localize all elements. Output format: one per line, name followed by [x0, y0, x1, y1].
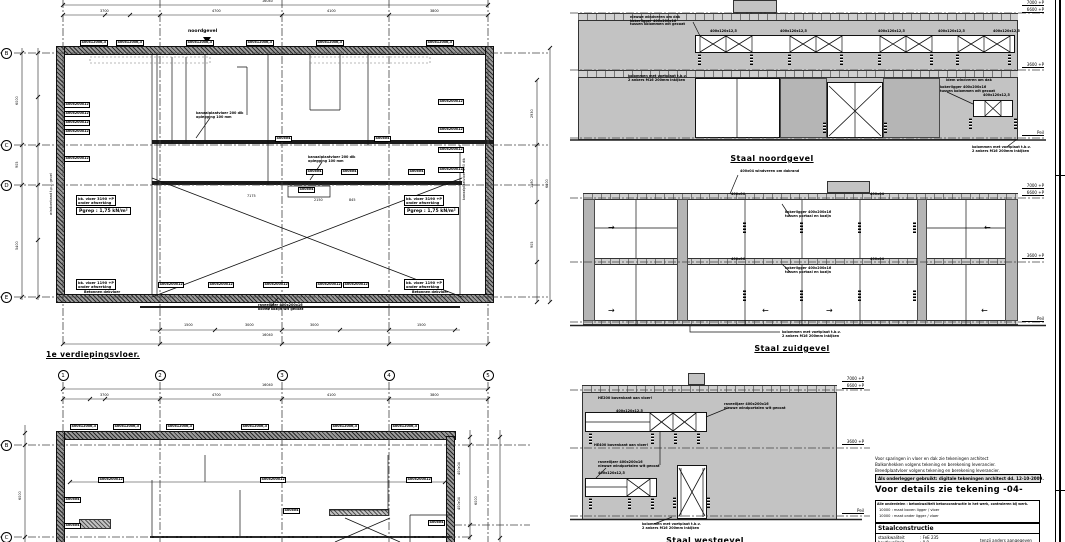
anchor-mark — [651, 498, 654, 509]
plan1-corridor-wall-2 — [152, 181, 462, 185]
beam-label: 400x200x12 — [64, 120, 90, 126]
zuidgevel-plinth — [583, 320, 1018, 325]
dimension-value: 4700 — [212, 10, 221, 14]
beam-label: 400x04 — [64, 497, 81, 503]
floor-level-note-low: bk. vloer 1190 +Ponder afwerking — [76, 279, 116, 290]
grid-bubble-row: B — [1, 440, 12, 451]
legend-item: 10000 : maat onder ligger / vloer — [879, 514, 939, 518]
level-label: 7000 +P — [1022, 1, 1044, 6]
beam-label: 400x200x12 — [64, 129, 90, 135]
floor-level-note: bk. vloer 3190 +Ponder afwerking — [76, 195, 116, 206]
plan2-partition — [80, 520, 110, 528]
plan2-west-wall — [57, 432, 64, 542]
beam-label: 400x200x12 — [438, 127, 464, 133]
grid-bubble-row: B — [1, 48, 12, 59]
beam-label: 400x200x12 — [158, 282, 184, 288]
dimension-value: 16040 — [262, 0, 273, 4]
anchor-mark — [589, 433, 592, 444]
level-label: Peil — [1022, 131, 1044, 136]
plan1-south-wall — [57, 295, 493, 302]
westgevel-title: Staal westgevel — [640, 536, 770, 542]
grid-bubble-col: 2 — [155, 370, 166, 381]
level-label: Peil — [842, 509, 864, 514]
noordgevel-roof-edge — [578, 13, 1018, 21]
leader-annotation: kolommen met voetplaat t.b.v. 2 ankers M… — [782, 331, 841, 338]
dimension-value: 5400 — [16, 241, 20, 250]
anchor-mark — [823, 122, 826, 133]
plank-outlines — [90, 57, 430, 63]
grid-bubble-row: E — [1, 292, 12, 303]
grid-bubble-row: D — [1, 180, 12, 191]
dimension-value: 1500 — [184, 324, 193, 328]
beam-label: 400x04 — [341, 169, 358, 175]
note-boxed: Als onderlegger gebruikt: digitale teken… — [875, 474, 1041, 483]
anchor-mark — [589, 498, 592, 509]
dimension-value: kanaalplaatvloer 200 dik — [463, 158, 467, 200]
anchor-mark — [930, 54, 933, 65]
dimension-value: 4100 — [327, 10, 336, 14]
grid-bubble-col: 4 — [384, 370, 395, 381]
noordgevel-brace-band-window — [695, 35, 1015, 53]
dimension-value: 16040 — [262, 384, 273, 388]
plan1-corridor-wall — [152, 140, 493, 144]
dimension-value: 3800 — [430, 394, 439, 398]
zuidgevel-floor-edge — [583, 258, 1018, 265]
anchor-mark — [884, 122, 887, 133]
beam-label: 400x200x12 — [64, 102, 90, 108]
dimension-value: 400x04 — [458, 497, 462, 510]
plan1-west-wall — [57, 47, 64, 302]
noordgevel-title: Staal noordgevel — [712, 154, 832, 163]
floor-level-line2: onder afwerking — [406, 201, 439, 205]
leader-annotation: kanaalplaatvloer 200 dik oplegging 100 m… — [196, 112, 243, 119]
level-label: 7000 +P — [842, 377, 864, 382]
anchor-mark — [858, 290, 861, 301]
note-line: Breedplaatvloer volgens tekening en bere… — [875, 468, 1000, 473]
beam-label: 400x200x12 — [64, 111, 90, 117]
beam-label: 400x120x6,3 — [426, 40, 454, 46]
floor-level-line2: onder afwerking — [406, 285, 439, 289]
legend-title: Alle onderdelen : betonkwaliteit betonco… — [877, 502, 1028, 506]
noordgevel-pier — [780, 78, 827, 138]
floor-level-line2: onder afwerking — [78, 201, 111, 205]
sheet-border-outer — [1059, 0, 1061, 542]
anchor-mark — [743, 222, 746, 233]
beam-label: 400x120x6,3 — [246, 40, 274, 46]
westgevel-brace-band-upper — [585, 412, 707, 432]
level-label: 7000 +P — [1022, 184, 1044, 189]
plan2-partition-2 — [330, 510, 388, 515]
beam-label: 400x120x6,3 — [391, 424, 419, 430]
dimension-value: 3000 — [310, 324, 319, 328]
anchor-mark — [1008, 54, 1011, 65]
plan1-edge-beam — [140, 306, 460, 308]
beam-label: 400x04 — [408, 169, 425, 175]
beam-label: 400x120x6,3 — [316, 40, 344, 46]
note-line: Voor sparingen in vloer en dak zie teken… — [875, 456, 988, 461]
leader-annotation: kolommen met voetplaat t.b.v. 2 ankers M… — [972, 146, 1031, 153]
noordgevel-roof-box — [733, 0, 777, 13]
anchor-mark — [969, 118, 972, 129]
dimension-value: 1580 — [531, 179, 535, 188]
zuidgevel-pier — [677, 199, 688, 321]
dimension-ticks — [20, 3, 552, 540]
detail-reference-note: Voor details zie tekening -04- — [875, 484, 1023, 494]
zuidgevel-roof-box — [827, 181, 870, 193]
anchor-mark — [878, 54, 881, 65]
beam-label: 400x200x12 — [406, 477, 432, 483]
beam-label: 400x120x6,3 — [241, 424, 269, 430]
beam-label: 400x04 — [64, 523, 81, 529]
beam-label: 400x200x12 — [438, 167, 464, 173]
beam-label: 400x04 — [428, 520, 445, 526]
dimension-lines — [22, 5, 550, 542]
anchor-mark — [800, 222, 803, 233]
plan2-edge-beam — [150, 536, 452, 538]
noordgevel-opening — [695, 78, 780, 138]
zuidgevel-roof-edge — [583, 193, 1018, 200]
anchor-mark — [956, 54, 959, 65]
dimension-value: 3000 — [245, 324, 254, 328]
level-label: 6600 +P — [842, 384, 864, 389]
anchor-mark — [913, 290, 916, 301]
beam-label: 400x200x12 — [316, 282, 342, 288]
grid-bubble-col: 5 — [483, 370, 494, 381]
dimension-value: 905 — [16, 162, 20, 168]
beam-label: 400x04 — [306, 169, 323, 175]
noordgevel-floor-edge — [578, 70, 1018, 78]
westgevel-roof-box — [688, 373, 705, 385]
anchor-mark — [673, 497, 676, 508]
dimension-value: 845 — [349, 199, 355, 203]
unless-noted-otherwise: tenzij anders aangegeven — [980, 538, 1032, 542]
dimension-value: 905 — [531, 242, 535, 248]
beam-label: 400x200x12 — [438, 99, 464, 105]
zuidgevel-pier — [583, 199, 595, 321]
north-facade-marker: noordgevel — [188, 29, 217, 34]
drawing-sheet: B C D E 1 2 3 4 5 B C 1e verdiepingsvloe… — [0, 0, 1065, 542]
sheet-border-tick — [1055, 175, 1065, 176]
anchor-mark — [651, 433, 654, 444]
dimension-value: 1500 — [417, 324, 426, 328]
dimension-value: 16040 — [262, 334, 273, 338]
beam-label: 400x04 — [298, 187, 315, 193]
dimension-value: windverband t.p.v. gevel — [50, 173, 54, 215]
anchor-mark — [674, 433, 677, 444]
anchor-mark — [1014, 118, 1017, 129]
dimension-value: 7175 — [247, 195, 256, 199]
noordgevel-door — [827, 82, 883, 138]
zuidgevel-title: Staal zuidgevel — [732, 344, 852, 353]
dimension-value: 6000 — [16, 96, 20, 105]
level-label: 3600 +P — [842, 440, 864, 445]
leader-annotation: kanaalplaatvloer 200 dik oplegging 100 m… — [308, 156, 355, 163]
level-label: 6600 +P — [1022, 191, 1044, 196]
dimension-value: 6000 — [475, 496, 479, 505]
dimension-value: 3800 — [430, 10, 439, 14]
anchor-mark — [743, 290, 746, 301]
grid-bubble-col: 1 — [58, 370, 69, 381]
legend-item: 10000 : maat boven ligger / vloer — [879, 508, 939, 512]
grid-bubble-col: 3 — [277, 370, 288, 381]
note-line: Balkonhekken volgens tekening en bereken… — [875, 462, 996, 467]
level-label: 6600 +P — [1022, 8, 1044, 13]
beam-label: 400x200x12 — [263, 282, 289, 288]
sheet-border-inner — [1055, 0, 1056, 542]
noordgevel-small-window — [973, 100, 1013, 117]
leader-annotation: kolommen met voetplaat t.b.v. 2 ankers M… — [642, 523, 701, 530]
floor-level-line2: onder afwerking — [78, 285, 111, 289]
beam-label: 400x200x12 — [260, 477, 286, 483]
beam-label: 400x200x12 — [64, 156, 90, 162]
beam-label: 400x120x6,3 — [166, 424, 194, 430]
dimension-value: 2930 — [531, 109, 535, 118]
zuidgevel-pier — [917, 199, 927, 321]
grid-bubble-row: C — [1, 532, 12, 542]
dimension-value: 6000 — [19, 491, 23, 500]
beam-label: 400x200x12 — [438, 147, 464, 153]
noordgevel-pier-2 — [883, 78, 940, 138]
floor-level-note: bk. vloer 3190 +Ponder afwerking — [404, 195, 444, 206]
plan1-title: 1e verdiepingsvloer. — [46, 350, 140, 359]
anchor-mark — [628, 498, 631, 509]
anchor-mark — [858, 222, 861, 233]
dimension-value: 3700 — [100, 394, 109, 398]
anchor-mark — [840, 54, 843, 65]
level-label: Peil — [1022, 317, 1044, 322]
level-label: 3600 +P — [1022, 63, 1044, 68]
dimension-value: 2150 — [314, 199, 323, 203]
sheet-border-tick — [1055, 490, 1065, 491]
beam-label: 400x200x12 — [343, 282, 369, 288]
anchor-mark — [698, 54, 701, 65]
floor-level-note-low: bk. vloer 1190 +Ponder afwerking — [404, 279, 444, 290]
plan1-north-wall — [63, 47, 488, 54]
beam-label: 400x120x6,3 — [80, 40, 108, 46]
anchor-mark — [697, 433, 700, 444]
beam-label: 400x200x12 — [98, 477, 124, 483]
load-value-box: Pgrep : 1,75 kN/m² — [404, 207, 459, 215]
beam-label: 400x120x6,3 — [331, 424, 359, 430]
plan2-north-wall — [57, 432, 455, 439]
beam-label: 400x04 — [283, 508, 300, 514]
dimension-value: 6000 — [546, 179, 550, 188]
leader-annotation: 400x04 windveren om dakrand — [740, 170, 799, 174]
beam-label: 400x200x12 — [208, 282, 234, 288]
plan1-east-wall — [486, 47, 493, 302]
anchor-mark — [707, 497, 710, 508]
anchor-mark — [788, 54, 791, 65]
beam-label: 400x120x6,3 — [70, 424, 98, 430]
north-arrow-icon — [203, 37, 211, 43]
anchor-mark — [800, 290, 803, 301]
grid-bubble-row: C — [1, 140, 12, 151]
plan2-east-wall — [447, 437, 454, 542]
westgevel-door — [677, 465, 707, 519]
dimension-value: 4700 — [212, 394, 221, 398]
zuidgevel-pier — [1005, 199, 1018, 321]
beam-label: 400x120x6,3 — [116, 40, 144, 46]
dimension-value: 400x04 — [458, 462, 462, 475]
beam-label: 400x120x6,3 — [113, 424, 141, 430]
westgevel-roof-edge — [582, 385, 837, 393]
westgevel-brace-band-lower — [585, 478, 657, 497]
anchor-mark — [750, 54, 753, 65]
anchor-mark — [913, 222, 916, 233]
dimension-value: 3700 — [100, 10, 109, 14]
level-label: 3600 +P — [1022, 254, 1044, 259]
load-value-box: Pgrep : 1,75 kN/m² — [76, 207, 131, 215]
dimension-value: 4100 — [327, 394, 336, 398]
steel-table-title: Staalconstructie — [876, 524, 1039, 534]
